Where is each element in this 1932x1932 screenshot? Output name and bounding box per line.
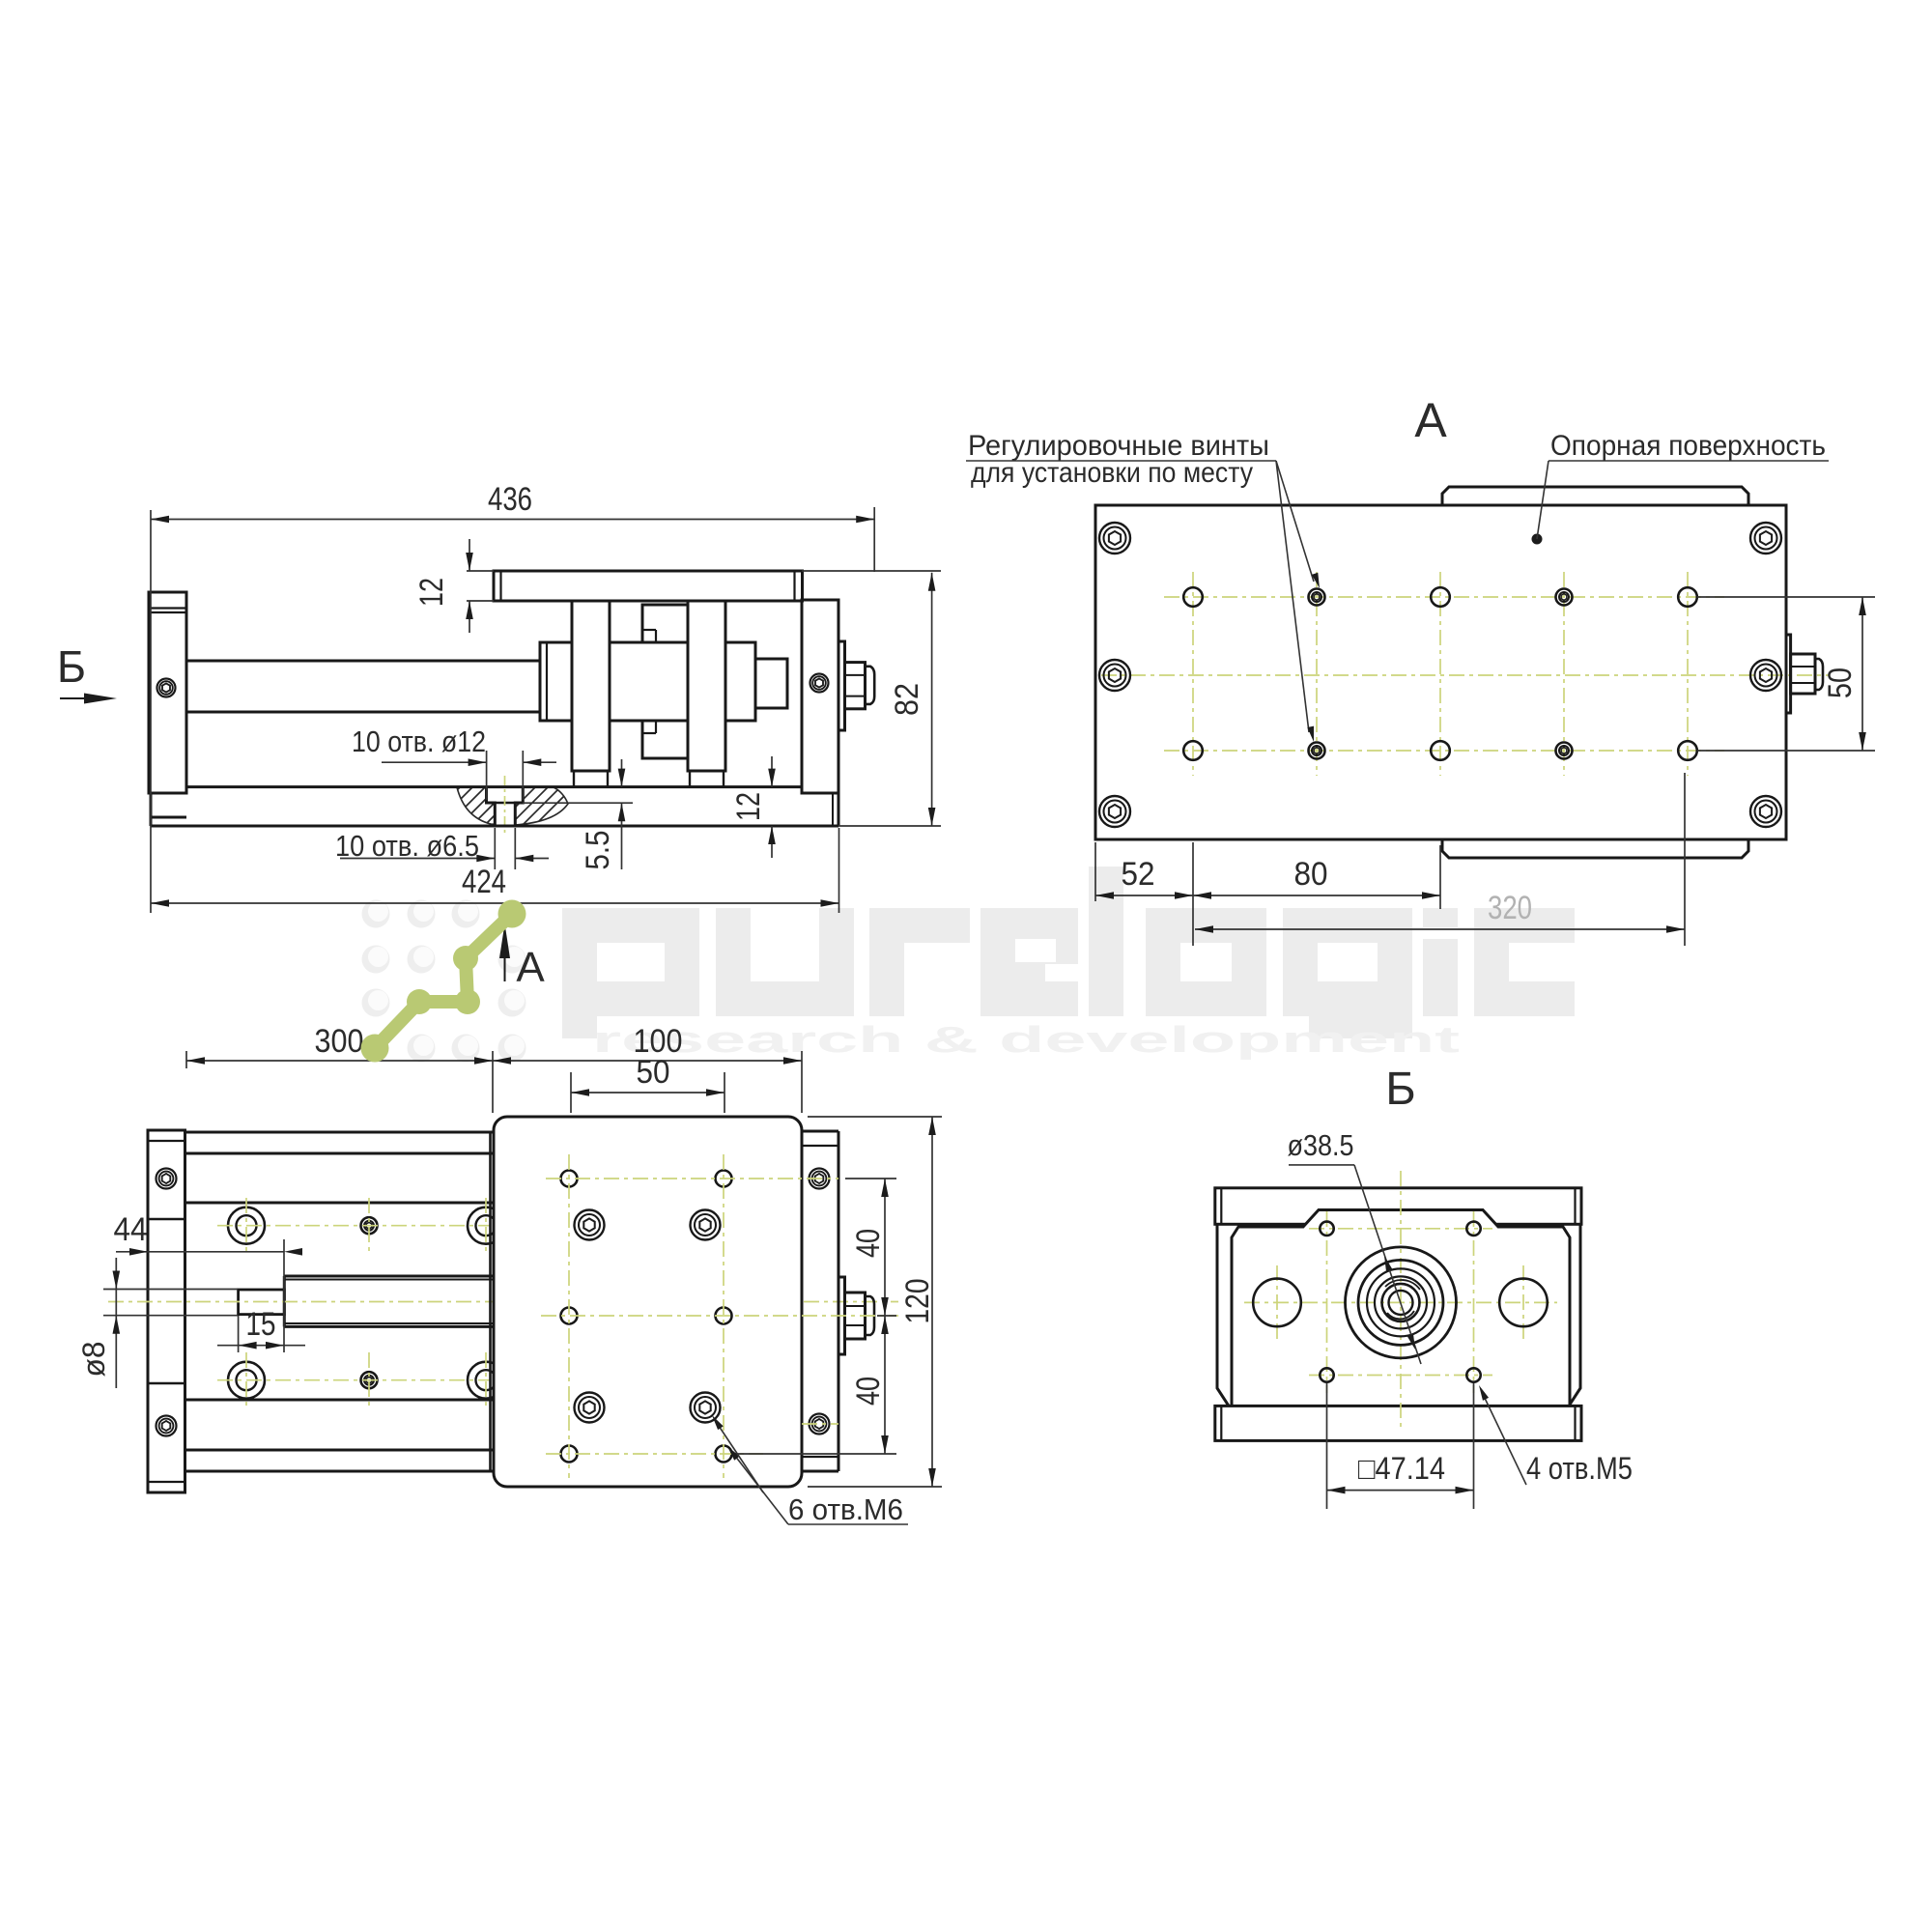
svg-text:ø38.5: ø38.5: [1288, 1128, 1354, 1162]
svg-text:5.5: 5.5: [580, 831, 616, 870]
svg-text:12: 12: [413, 578, 450, 607]
svg-text:300: 300: [315, 1023, 364, 1060]
svg-text:ø8: ø8: [76, 1342, 111, 1378]
svg-text:80: 80: [1294, 856, 1328, 893]
svg-text:6 отв.М6: 6 отв.М6: [788, 1492, 903, 1526]
svg-text:А: А: [516, 944, 545, 991]
svg-text:50: 50: [1822, 668, 1859, 698]
svg-text:10 отв. ø12: 10 отв. ø12: [352, 724, 486, 758]
svg-text:320: 320: [1488, 890, 1532, 926]
svg-text:120: 120: [899, 1279, 936, 1324]
svg-text:424: 424: [462, 864, 506, 900]
svg-text:12: 12: [730, 792, 767, 821]
svg-text:52: 52: [1122, 856, 1155, 893]
svg-text:□47.14: □47.14: [1358, 1451, 1445, 1486]
svg-text:для установки по месту: для установки по месту: [971, 457, 1253, 489]
svg-text:82: 82: [889, 683, 925, 716]
svg-text:40: 40: [850, 1229, 887, 1258]
svg-text:Б: Б: [1385, 1064, 1416, 1115]
svg-text:Б: Б: [57, 641, 86, 692]
svg-text:А: А: [1414, 393, 1447, 447]
svg-text:research & development: research & development: [592, 1020, 1461, 1061]
svg-text:Опорная поверхность: Опорная поверхность: [1550, 430, 1826, 462]
svg-text:50: 50: [637, 1054, 670, 1091]
svg-text:40: 40: [850, 1377, 887, 1406]
svg-text:4 отв.М5: 4 отв.М5: [1526, 1451, 1633, 1486]
svg-text:436: 436: [488, 481, 532, 518]
svg-text:44: 44: [114, 1211, 148, 1248]
svg-text:15: 15: [246, 1306, 276, 1343]
